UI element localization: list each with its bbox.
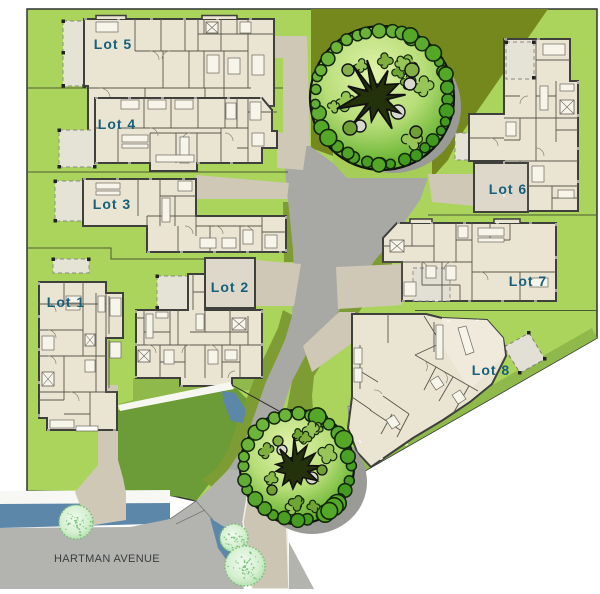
svg-text:Lot 8: Lot 8 xyxy=(472,362,510,378)
svg-text:Lot 7: Lot 7 xyxy=(509,273,547,289)
svg-text:Lot 3: Lot 3 xyxy=(93,196,131,212)
svg-text:Lot 2: Lot 2 xyxy=(211,279,249,295)
svg-text:Lot 5: Lot 5 xyxy=(94,36,132,52)
svg-text:Lot 6: Lot 6 xyxy=(489,181,527,197)
svg-text:Lot 4: Lot 4 xyxy=(98,116,136,132)
svg-text:HARTMAN AVENUE: HARTMAN AVENUE xyxy=(54,553,160,565)
svg-text:Lot 1: Lot 1 xyxy=(47,294,85,310)
